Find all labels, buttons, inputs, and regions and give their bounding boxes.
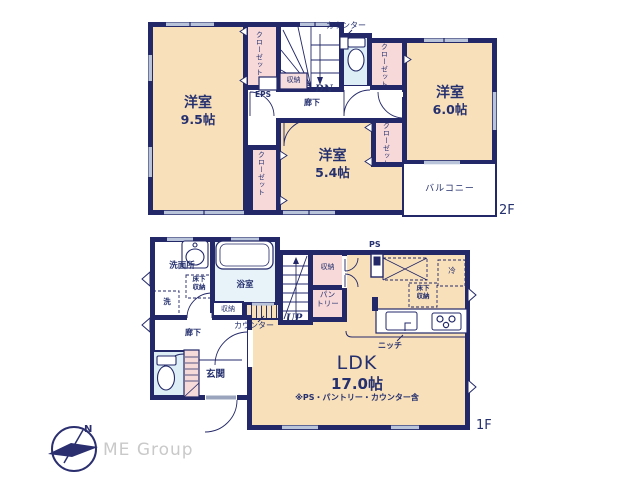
hallway-1f-label: 廊下 — [185, 328, 201, 338]
toilet-2f-fixture — [340, 37, 365, 71]
bathtub — [216, 241, 273, 269]
compass-icon: N — [48, 424, 98, 471]
pantry-label: パントリー — [310, 290, 345, 308]
cupboard-cross — [383, 258, 427, 280]
closet-label-54r: クローゼット — [382, 122, 390, 164]
floor-plan: N 洋室 9.5帖 洋室 5.4帖 洋室 6.0帖 クローゼット クローゼット … — [0, 0, 640, 480]
eps-label: EPS — [255, 90, 271, 99]
underfloor-kitchen-label: 床下収納 — [409, 285, 437, 301]
washroom-label: 洗面所 — [152, 261, 212, 271]
room-5-4-label: 洋室 5.4帖 — [285, 148, 380, 180]
closet-label-east: クローゼット — [380, 43, 388, 87]
counter-2f-label: カウンター — [326, 21, 366, 31]
counter-1f-label: カウンター — [234, 321, 274, 331]
hallway-2f-label: 廊下 — [304, 98, 320, 108]
floor-1f-label: 1F — [476, 418, 492, 434]
kitchen — [346, 297, 467, 337]
ps-shaft — [371, 254, 383, 277]
shoe-storage — [184, 350, 199, 397]
entrance-label: 玄関 — [206, 369, 225, 380]
room-6-0-label: 洋室 6.0帖 — [405, 85, 495, 117]
washer-label: 洗 — [156, 297, 178, 306]
closet-label-54l: クローゼット — [257, 151, 265, 211]
ps-label: PS — [369, 240, 381, 250]
storage-2f-label: 収納 — [281, 76, 306, 84]
storage-bath-label: 収納 — [214, 305, 242, 313]
bath-label: 浴室 — [215, 280, 275, 290]
storage-1f-label: 収納 — [312, 263, 343, 271]
ldk-label: LDK 17.0帖 ※PS・パントリー・カウンター含 — [277, 352, 437, 402]
closet-label-north: クローゼット — [255, 31, 263, 85]
room-9-5-label: 洋室 9.5帖 — [150, 95, 246, 127]
floor-2f-label: 2F — [499, 203, 515, 219]
plan-linework: N — [0, 0, 640, 480]
fridge-label: 冷 — [442, 266, 462, 275]
compass-north-label: N — [84, 424, 92, 435]
staircase-1f — [283, 256, 308, 319]
underfloor-washroom-label: 床下収納 — [186, 276, 212, 292]
balcony-label: バルコニー — [405, 184, 495, 195]
brand-logo-text: ME Group — [103, 440, 194, 460]
dn-label: DN — [315, 84, 333, 96]
toilet-1f-fixture — [157, 356, 176, 390]
niche-label: ニッチ — [378, 341, 402, 351]
up-label: UP — [286, 313, 302, 325]
